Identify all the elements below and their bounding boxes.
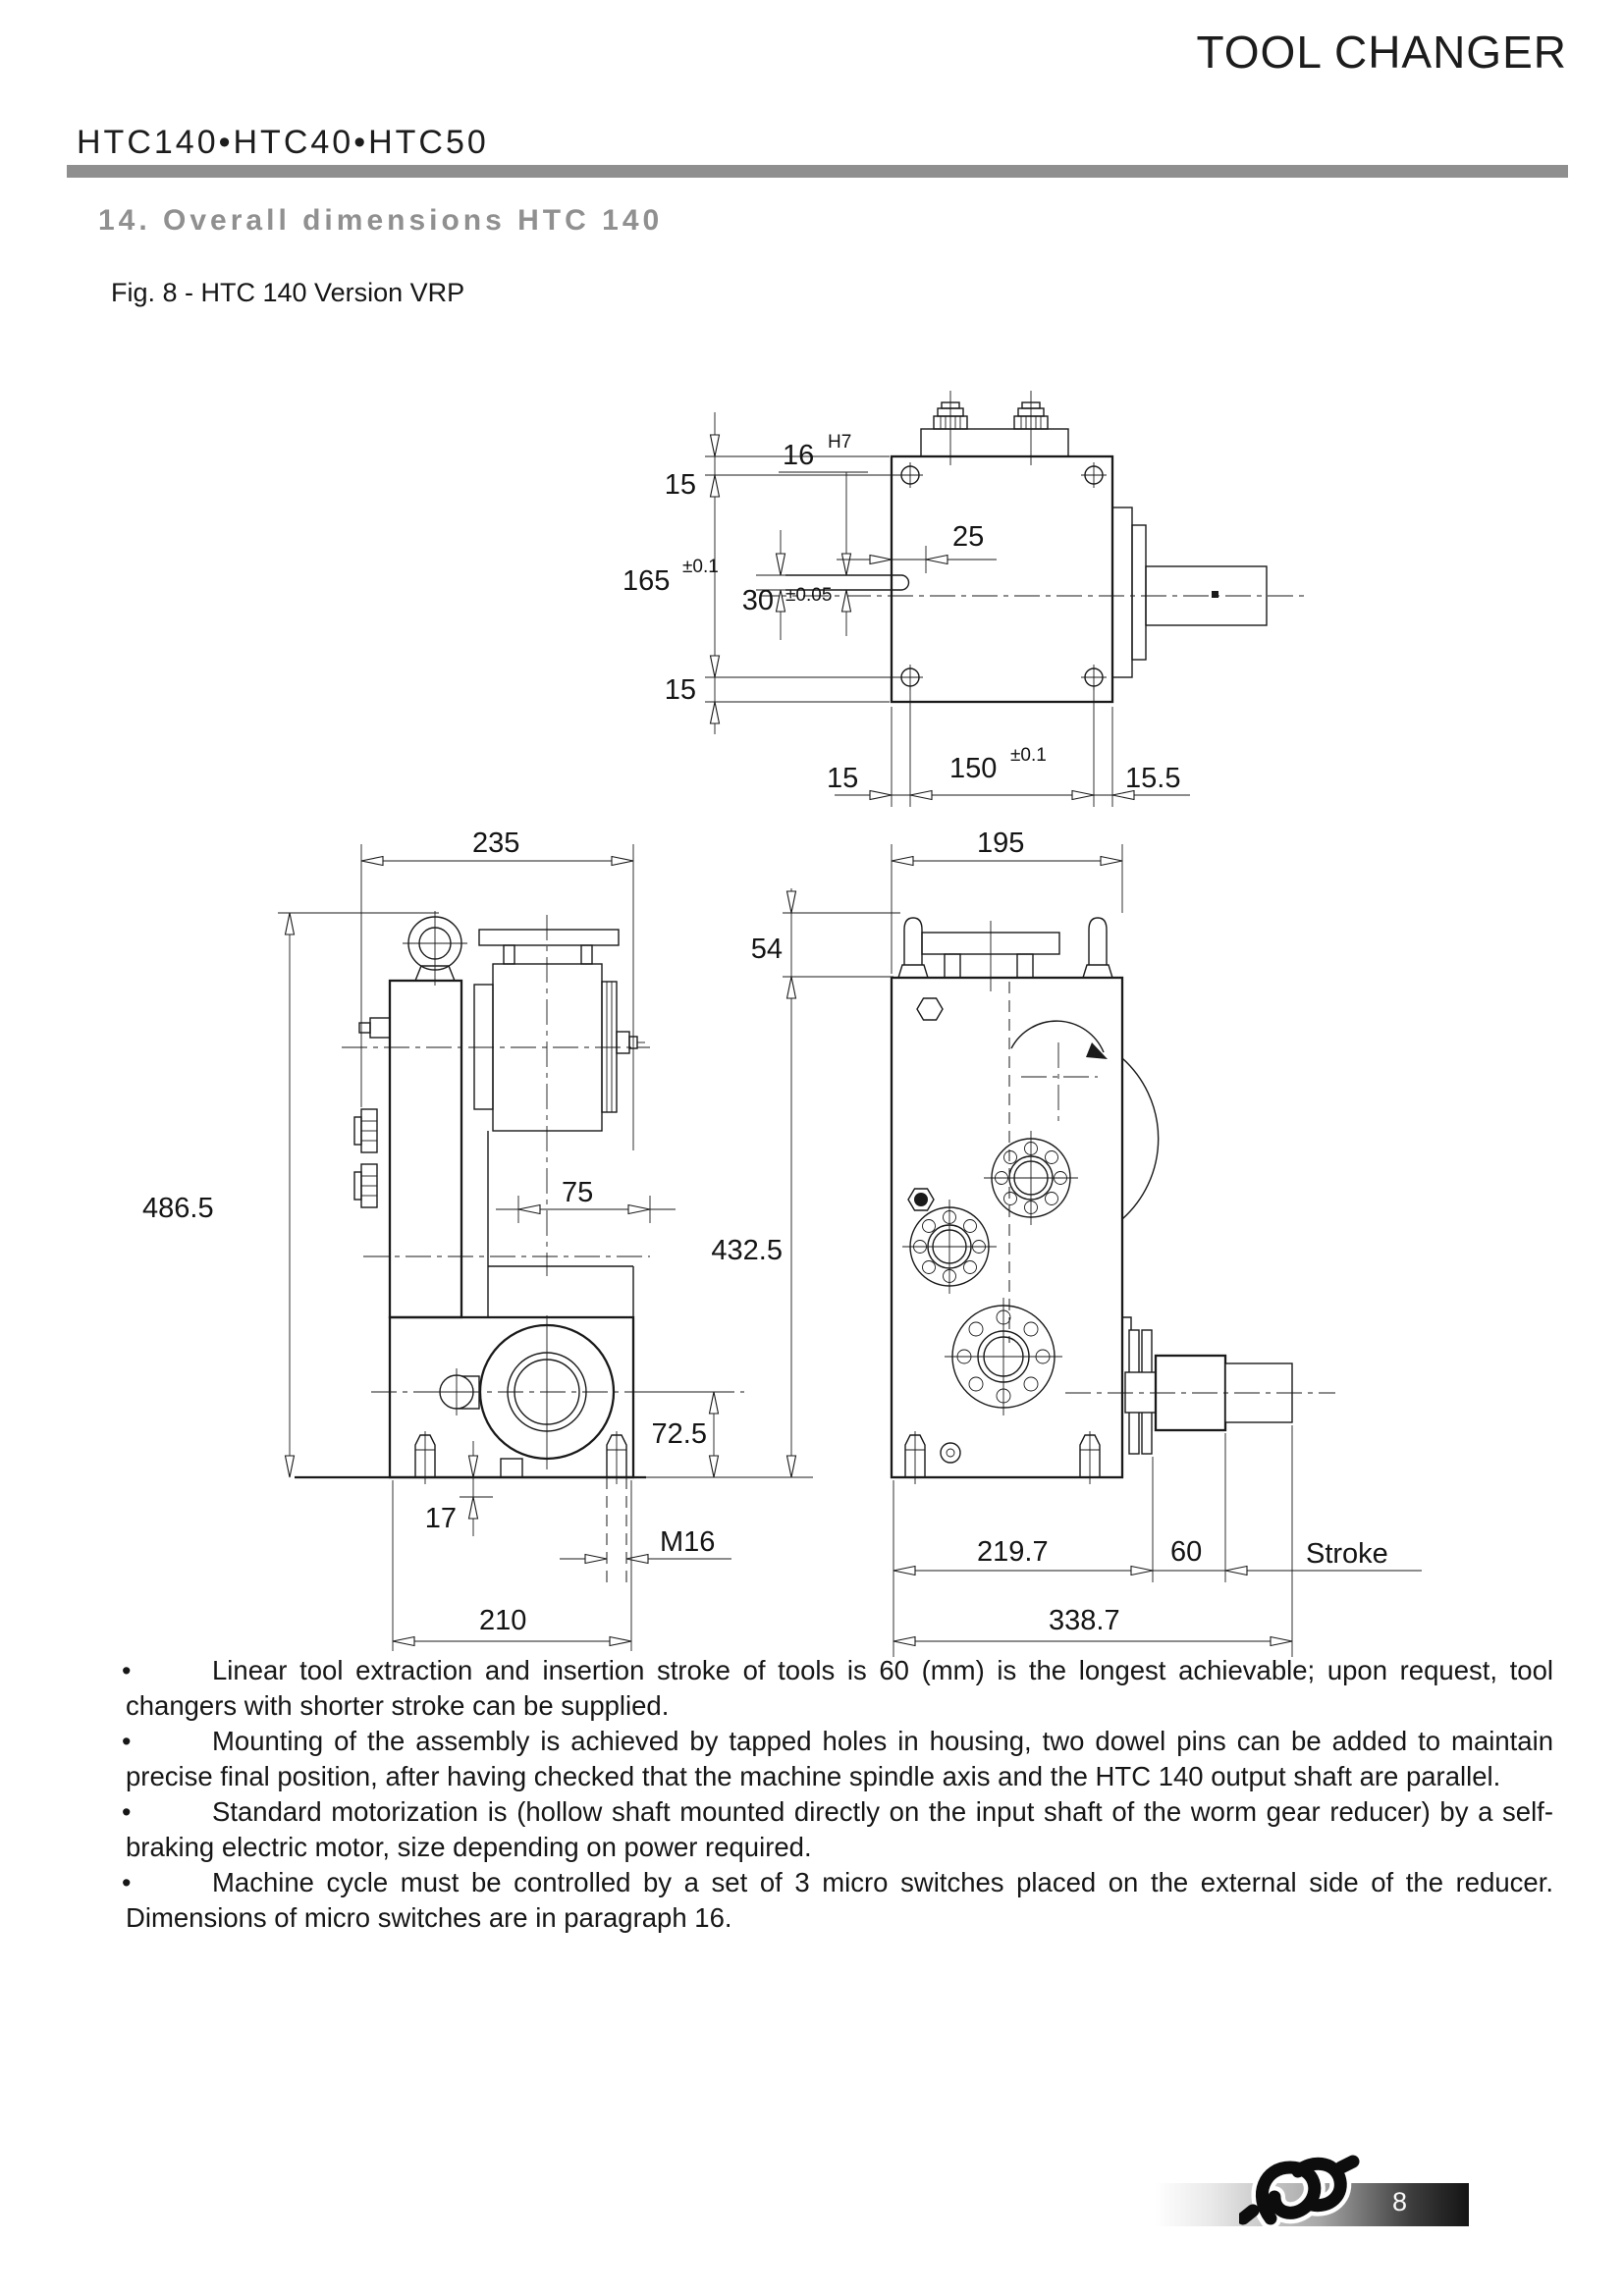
dim-16: 16: [783, 440, 814, 471]
technical-drawing: 15 165 ±0.1 15 16 H7 30 ±0.05 25: [0, 0, 1624, 2296]
note-mounting: •Mounting of the assembly is achieved by…: [116, 1724, 1553, 1794]
bullet-icon: •: [122, 1724, 131, 1759]
dim-17: 17: [425, 1503, 457, 1534]
mount-holes: [897, 462, 1107, 690]
document-page: TOOL CHANGER HTC140•HTC40•HTC50 14. Over…: [0, 0, 1624, 2296]
dim-486-5: 486.5: [142, 1193, 214, 1224]
brand-logo-icon: [1239, 2150, 1377, 2238]
bearing-flange-mid: [902, 1200, 997, 1294]
bullet-icon: •: [122, 1794, 131, 1830]
dim-195: 195: [977, 828, 1024, 859]
dim-54: 54: [751, 934, 783, 965]
dim-stroke: Stroke: [1306, 1538, 1388, 1570]
dim-25: 25: [952, 521, 984, 553]
dim-165-tol: ±0.1: [682, 557, 719, 577]
bearing-flange-upper: [984, 1131, 1078, 1225]
dim-15-bottom: 15: [665, 674, 696, 706]
dim-15-top: 15: [665, 469, 696, 501]
bullet-icon: •: [122, 1865, 131, 1900]
view-front-elevation: 195: [638, 828, 1422, 1657]
dim-72-5: 72.5: [652, 1418, 707, 1450]
dim-30: 30: [742, 585, 774, 616]
dim-30-tol: ±0.05: [785, 585, 832, 606]
notes-list: •Linear tool extraction and insertion st…: [116, 1653, 1553, 1936]
note-micro-switches: •Machine cycle must be controlled by a s…: [116, 1865, 1553, 1936]
dim-75: 75: [562, 1177, 593, 1208]
view-top-plan: 15 165 ±0.1 15 16 H7 30 ±0.05 25: [623, 391, 1306, 807]
dim-60: 60: [1170, 1536, 1202, 1568]
bearing-flange-lower: [945, 1298, 1062, 1415]
dim-210: 210: [479, 1605, 526, 1636]
dim-432-5: 432.5: [711, 1235, 783, 1266]
dim-15-base: 15: [827, 763, 858, 794]
dim-150-tol: ±0.1: [1010, 745, 1047, 766]
note-motorization: •Standard motorization is (hollow shaft …: [116, 1794, 1553, 1865]
dim-150: 150: [949, 753, 997, 784]
dim-219-7: 219.7: [977, 1536, 1049, 1568]
page-number: 8: [1392, 2187, 1407, 2217]
view-side-elevation: 235: [142, 828, 744, 1651]
dim-15-5: 15.5: [1125, 763, 1180, 794]
dim-338-7: 338.7: [1049, 1605, 1120, 1636]
dim-16-fit: H7: [828, 432, 851, 453]
dim-m16: M16: [660, 1526, 715, 1558]
note-stroke: •Linear tool extraction and insertion st…: [116, 1653, 1553, 1724]
dim-165: 165: [623, 565, 670, 597]
bullet-icon: •: [122, 1653, 131, 1688]
dim-235: 235: [472, 828, 519, 859]
